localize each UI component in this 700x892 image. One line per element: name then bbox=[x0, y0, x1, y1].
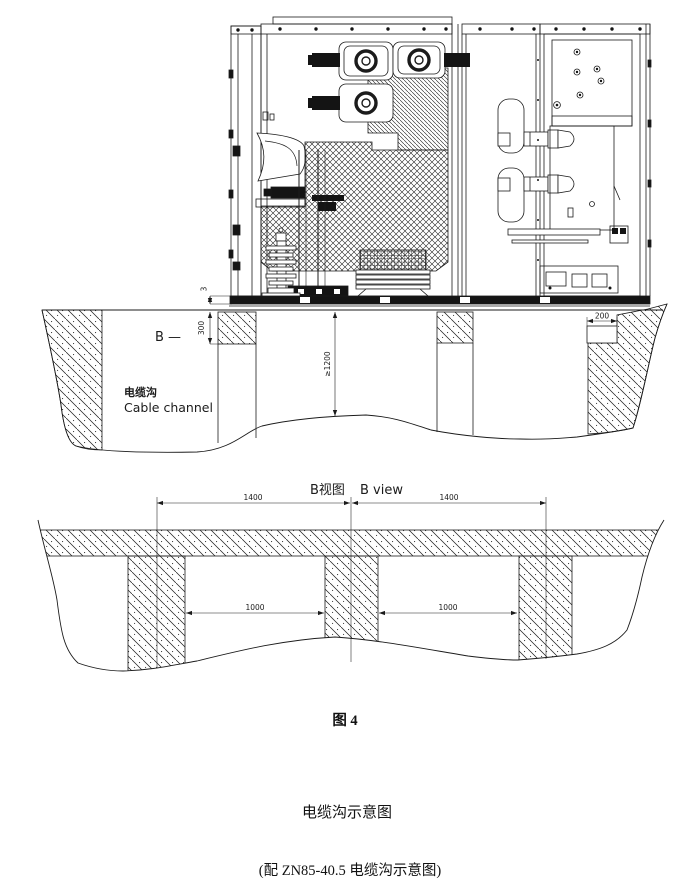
rear-compartment bbox=[498, 59, 628, 293]
b-view: B视图 B view 1400 1400 1000 1000 bbox=[36, 483, 666, 686]
dim-opening-left: 1000 bbox=[245, 603, 264, 612]
engineering-drawing: 3 300 ≥1200 200 B — 电缆沟 Cable channel B视… bbox=[0, 0, 700, 892]
bushing-top-right bbox=[393, 42, 445, 78]
terminal-panel bbox=[552, 40, 632, 126]
bolt-dots bbox=[236, 27, 641, 31]
ledge-notch bbox=[587, 326, 617, 343]
earth-bank-left bbox=[42, 310, 102, 450]
dim-spacing-right: 1400 bbox=[439, 493, 458, 502]
mechanism-box bbox=[540, 266, 618, 293]
trench-wall-cap-left bbox=[218, 312, 256, 344]
break-line-bottom bbox=[42, 304, 667, 452]
dim-ledge-width: 200 bbox=[595, 312, 610, 321]
dim-wall-depth: 300 bbox=[197, 321, 206, 336]
figure-number: 图 4 bbox=[332, 712, 357, 729]
b-view-title-cn: B视图 bbox=[310, 483, 345, 498]
b-view-title-en: B view bbox=[360, 483, 403, 498]
trench-wall-right bbox=[519, 556, 572, 668]
terminal-holes bbox=[554, 49, 604, 108]
cable-channel-label-cn: 电缆沟 bbox=[124, 385, 157, 399]
bushing-lower bbox=[339, 84, 393, 122]
cable-channel-label-en: Cable channel bbox=[124, 400, 213, 415]
figure-caption: 电缆沟示意图 bbox=[302, 803, 392, 821]
front-door-details bbox=[256, 112, 305, 207]
drawing-page: 3 300 ≥1200 200 B — 电缆沟 Cable channel B视… bbox=[0, 0, 700, 892]
dim-spacing-left: 1400 bbox=[243, 493, 262, 502]
switchgear-cabinet bbox=[229, 17, 651, 306]
figure-note: (配 ZN85-40.5 电缆沟示意图) bbox=[259, 861, 442, 879]
cable-trench-section: 3 300 ≥1200 200 B — 电缆沟 Cable channel bbox=[42, 286, 667, 452]
cabinet-base bbox=[229, 296, 650, 306]
section-label-b: B — bbox=[155, 330, 181, 345]
trench-wall-left bbox=[128, 556, 185, 686]
trench-wall-cap-mid bbox=[437, 312, 473, 343]
dim-trench-depth: ≥1200 bbox=[323, 351, 332, 377]
shelf bbox=[508, 229, 600, 235]
dim-base-gap: 3 bbox=[200, 286, 209, 291]
captions: 图 4 电缆沟示意图 (配 ZN85-40.5 电缆沟示意图) bbox=[259, 712, 442, 879]
bellows-insulator bbox=[356, 250, 430, 296]
earth-bank-right bbox=[588, 304, 667, 434]
dim-opening-right: 1000 bbox=[438, 603, 457, 612]
bushing-top-left bbox=[339, 42, 393, 80]
busbar-compartment bbox=[308, 42, 470, 150]
